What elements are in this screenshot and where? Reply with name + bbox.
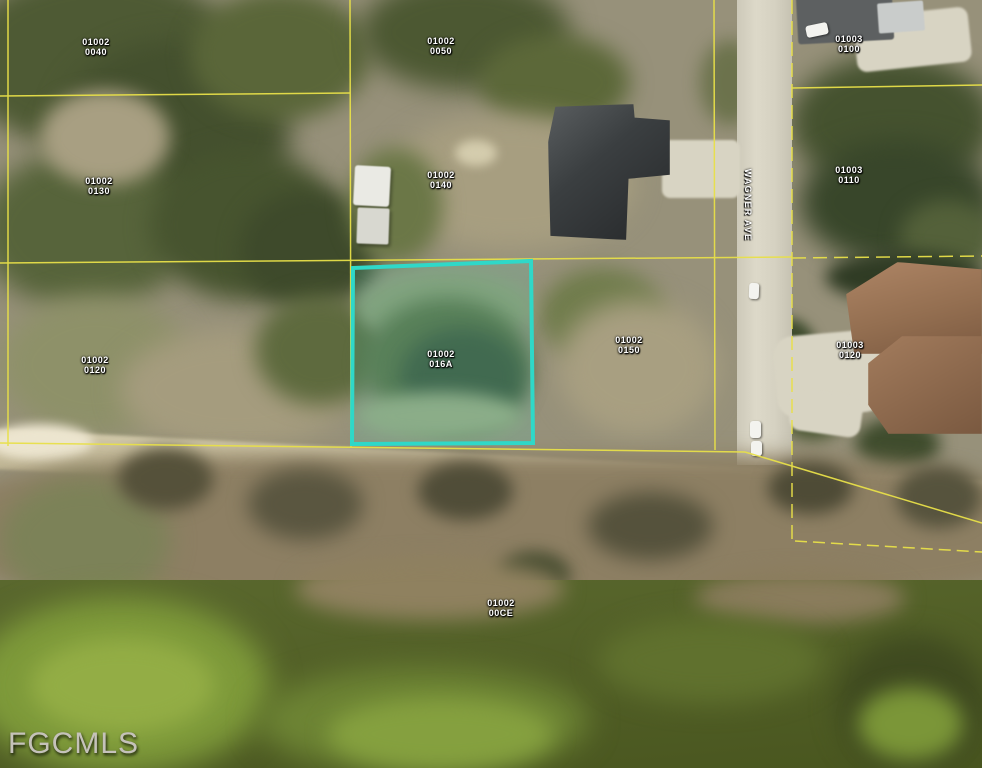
parcel-book: 01003 bbox=[835, 34, 863, 44]
parcel-book: 01002 bbox=[427, 349, 455, 359]
parcel-book: 01003 bbox=[836, 340, 864, 350]
parcel-lot: 0040 bbox=[82, 47, 110, 57]
shore-scrub bbox=[896, 466, 981, 528]
mls-watermark: FGCMLS bbox=[8, 727, 139, 761]
shore-and-water bbox=[0, 0, 982, 768]
parcel-book: 01002 bbox=[615, 335, 643, 345]
shore-scrub bbox=[588, 492, 713, 560]
parcel-book: 01002 bbox=[82, 37, 110, 47]
parcel-lot: 0150 bbox=[615, 345, 643, 355]
white-shed bbox=[356, 207, 389, 244]
parcel-label: 010030110 bbox=[835, 165, 863, 185]
car-on-road bbox=[751, 441, 762, 456]
parcel-lot: 0130 bbox=[85, 186, 113, 196]
waterline-dirt bbox=[295, 558, 565, 620]
waterline-dirt bbox=[695, 572, 905, 624]
parcel-label: 010020150 bbox=[615, 335, 643, 355]
shore-scrub bbox=[118, 448, 213, 510]
parcel-lot: 00CE bbox=[487, 608, 515, 618]
shore-scrub bbox=[768, 462, 853, 514]
algae-patch bbox=[328, 698, 553, 768]
parcel-book: 01003 bbox=[835, 165, 863, 175]
algae-patch bbox=[30, 638, 215, 733]
shore-scrub bbox=[248, 468, 363, 540]
aerial-parcel-map: 010020040 010020050 010030100 010020130 … bbox=[0, 0, 982, 768]
parcel-book: 01002 bbox=[427, 170, 455, 180]
car-on-road bbox=[749, 283, 760, 299]
parcel-lot: 0050 bbox=[427, 46, 455, 56]
parcel-lot: 0120 bbox=[81, 365, 109, 375]
house-top-right-structure bbox=[877, 0, 925, 33]
parcel-label: 010020140 bbox=[427, 170, 455, 190]
parcel-book: 01002 bbox=[487, 598, 515, 608]
parcel-label: 010020120 bbox=[81, 355, 109, 375]
algae-patch bbox=[858, 688, 963, 760]
parcel-label: 010030100 bbox=[835, 34, 863, 54]
white-trailer bbox=[353, 165, 391, 207]
house-brown-roof-lower bbox=[868, 336, 982, 434]
water-tint bbox=[598, 618, 823, 703]
parcel-lot: 016A bbox=[427, 359, 455, 369]
parcel-lot: 0140 bbox=[427, 180, 455, 190]
shore-scrub bbox=[418, 462, 513, 520]
parcel-lot: 0100 bbox=[835, 44, 863, 54]
car-on-road bbox=[750, 421, 761, 438]
parcel-label: 010020050 bbox=[427, 36, 455, 56]
parcel-label: 0100200CE bbox=[487, 598, 515, 618]
parcel-book: 01002 bbox=[85, 176, 113, 186]
subject-parcel-label: 01002016A bbox=[427, 349, 455, 369]
street-label-wagner-ave: WAGNER AVE bbox=[743, 169, 753, 242]
parcel-book: 01002 bbox=[81, 355, 109, 365]
parcel-label: 010020130 bbox=[85, 176, 113, 196]
parcel-book: 01002 bbox=[427, 36, 455, 46]
parcel-lot: 0120 bbox=[836, 350, 864, 360]
parcel-label: 010030120 bbox=[836, 340, 864, 360]
parcel-lot: 0110 bbox=[835, 175, 863, 185]
parcel-label: 010020040 bbox=[82, 37, 110, 57]
